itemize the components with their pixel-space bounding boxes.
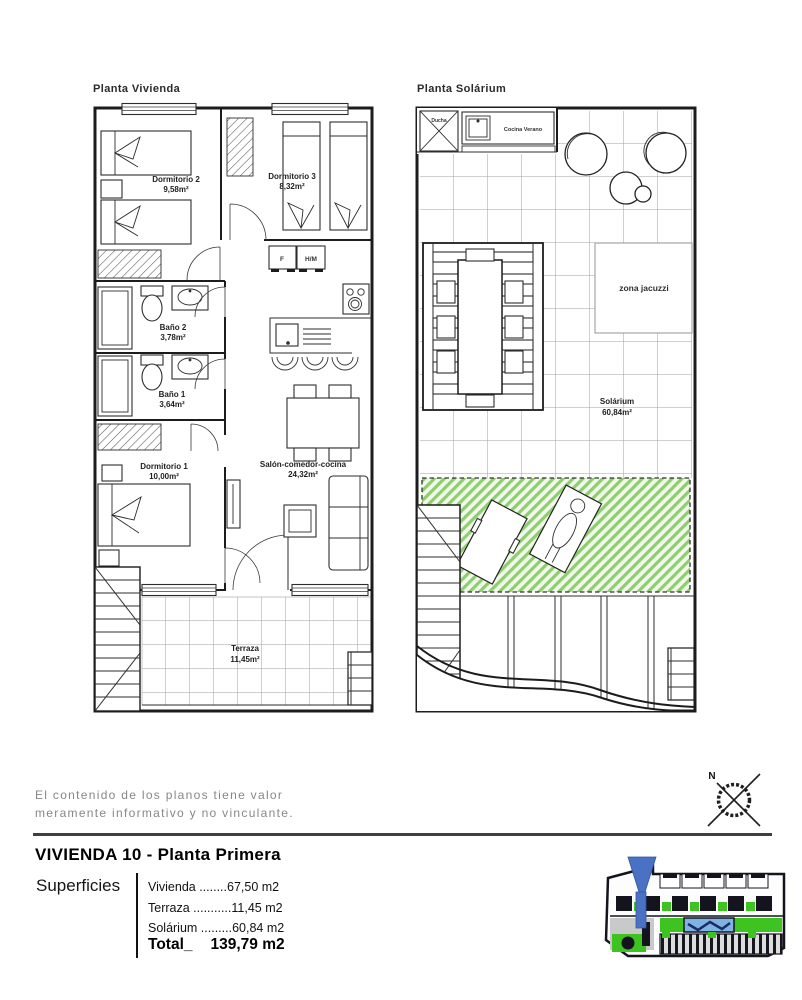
surface-row-label: Solárium xyxy=(148,921,197,935)
total-label: Total_ xyxy=(148,936,193,953)
room-label: Dormitorio 3 xyxy=(268,172,316,181)
plan-sheet: Planta Vivienda xyxy=(0,0,802,1000)
window xyxy=(142,585,216,596)
utility-corner: Ducha Cocina Verano xyxy=(417,108,557,154)
bed xyxy=(330,122,367,230)
disclaimer-line-2: meramente informativo y no vinculante. xyxy=(35,804,294,822)
jacuzzi-zone: zona jacuzzi xyxy=(595,243,692,333)
side-table xyxy=(284,505,316,537)
surface-row: Vivienda ........67,50 m2 xyxy=(148,877,284,898)
bathroom1-fixtures xyxy=(98,355,208,416)
bed xyxy=(101,131,191,175)
site-pool xyxy=(660,918,782,932)
cocina-verano-label: Cocina Verano xyxy=(504,127,543,133)
window xyxy=(272,104,348,115)
bed xyxy=(98,484,190,546)
outdoor-table xyxy=(458,260,502,394)
room-label: Baño 2 xyxy=(160,323,187,332)
small-stair xyxy=(668,648,694,700)
total-row: Total_139,79 m2 xyxy=(148,936,285,954)
title-block-divider xyxy=(136,873,138,958)
bar-stools xyxy=(272,357,358,370)
site-map xyxy=(598,852,802,964)
surface-row-value: 60,84 m2 xyxy=(232,921,284,935)
kitchen: F H/M xyxy=(269,246,372,370)
compass-icon: N xyxy=(708,771,760,826)
room-label: Terraza xyxy=(231,644,259,653)
ducha-label: Ducha xyxy=(431,118,447,124)
surface-row-label: Vivienda xyxy=(148,880,196,894)
room-area: 3,78m² xyxy=(160,333,186,342)
room-area: 11,45m² xyxy=(230,655,260,664)
window xyxy=(292,585,368,596)
room-label: Solárium xyxy=(600,397,634,406)
surface-row-value: 67,50 m2 xyxy=(227,880,279,894)
window xyxy=(122,104,196,115)
room-label: Dormitorio 2 xyxy=(152,175,200,184)
superficies-label: Superficies xyxy=(36,876,120,896)
nightstand xyxy=(99,550,119,566)
closet-hm-label: H/M xyxy=(305,256,317,263)
room-area: 60,84m² xyxy=(602,408,632,417)
terrace-door xyxy=(233,535,288,590)
room-area: 24,32m² xyxy=(288,470,318,479)
closet-dorm1 xyxy=(98,424,161,450)
small-stair xyxy=(348,652,372,705)
room-area: 3,64m² xyxy=(159,400,185,409)
site-units-top xyxy=(660,874,768,888)
surface-row-value: 11,45 m2 xyxy=(231,901,282,915)
tv-unit xyxy=(227,480,240,528)
room-area: 9,58m² xyxy=(163,185,189,194)
room-label: Baño 1 xyxy=(159,390,186,399)
stove xyxy=(343,284,369,314)
footer-divider xyxy=(33,833,772,836)
surface-row-dots: ........... xyxy=(190,901,232,915)
surface-row-dots: ........ xyxy=(196,880,227,894)
closet-f-label: F xyxy=(280,256,284,263)
disclaimer-line-1: El contenido de los planos tiene valor xyxy=(35,786,294,804)
staircase xyxy=(95,567,140,711)
nightstand xyxy=(101,180,122,198)
surface-row-dots: ......... xyxy=(197,921,232,935)
plan-solarium-title: Planta Solárium xyxy=(417,83,506,95)
closet-dorm3 xyxy=(227,118,253,176)
total-value: 139,79 m2 xyxy=(211,936,285,953)
room-label: Dormitorio 1 xyxy=(140,462,188,471)
pergola-dining xyxy=(423,243,543,410)
room-label: Salón-comedor-cocina xyxy=(260,460,347,469)
sheet-title: VIVIENDA 10 - Planta Primera xyxy=(35,845,281,865)
compass-north-label: N xyxy=(708,771,715,782)
bed xyxy=(101,200,191,244)
closet-dorm2 xyxy=(98,250,161,278)
plan-vivienda: Planta Vivienda xyxy=(93,83,372,711)
dining-table xyxy=(287,385,359,461)
surface-row: Terraza ...........11,45 m2 xyxy=(148,898,284,919)
room-area: 8,32m² xyxy=(279,182,305,191)
disclaimer-text: El contenido de los planos tiene valor m… xyxy=(35,786,294,822)
surface-rows: Vivienda ........67,50 m2 Terraza ......… xyxy=(148,877,284,939)
room-area: 10,00m² xyxy=(149,472,179,481)
bathroom2-fixtures xyxy=(98,286,208,349)
site-left-area xyxy=(610,918,654,952)
plan-vivienda-title: Planta Vivienda xyxy=(93,83,181,95)
sofa xyxy=(329,476,368,570)
site-units-bottom xyxy=(660,932,782,954)
nightstand xyxy=(102,465,122,481)
surface-row-label: Terraza xyxy=(148,901,190,915)
plan-solarium: Planta Solárium Ducha Cocina Verano xyxy=(417,83,695,711)
zona-jacuzzi-label: zona jacuzzi xyxy=(619,283,669,293)
